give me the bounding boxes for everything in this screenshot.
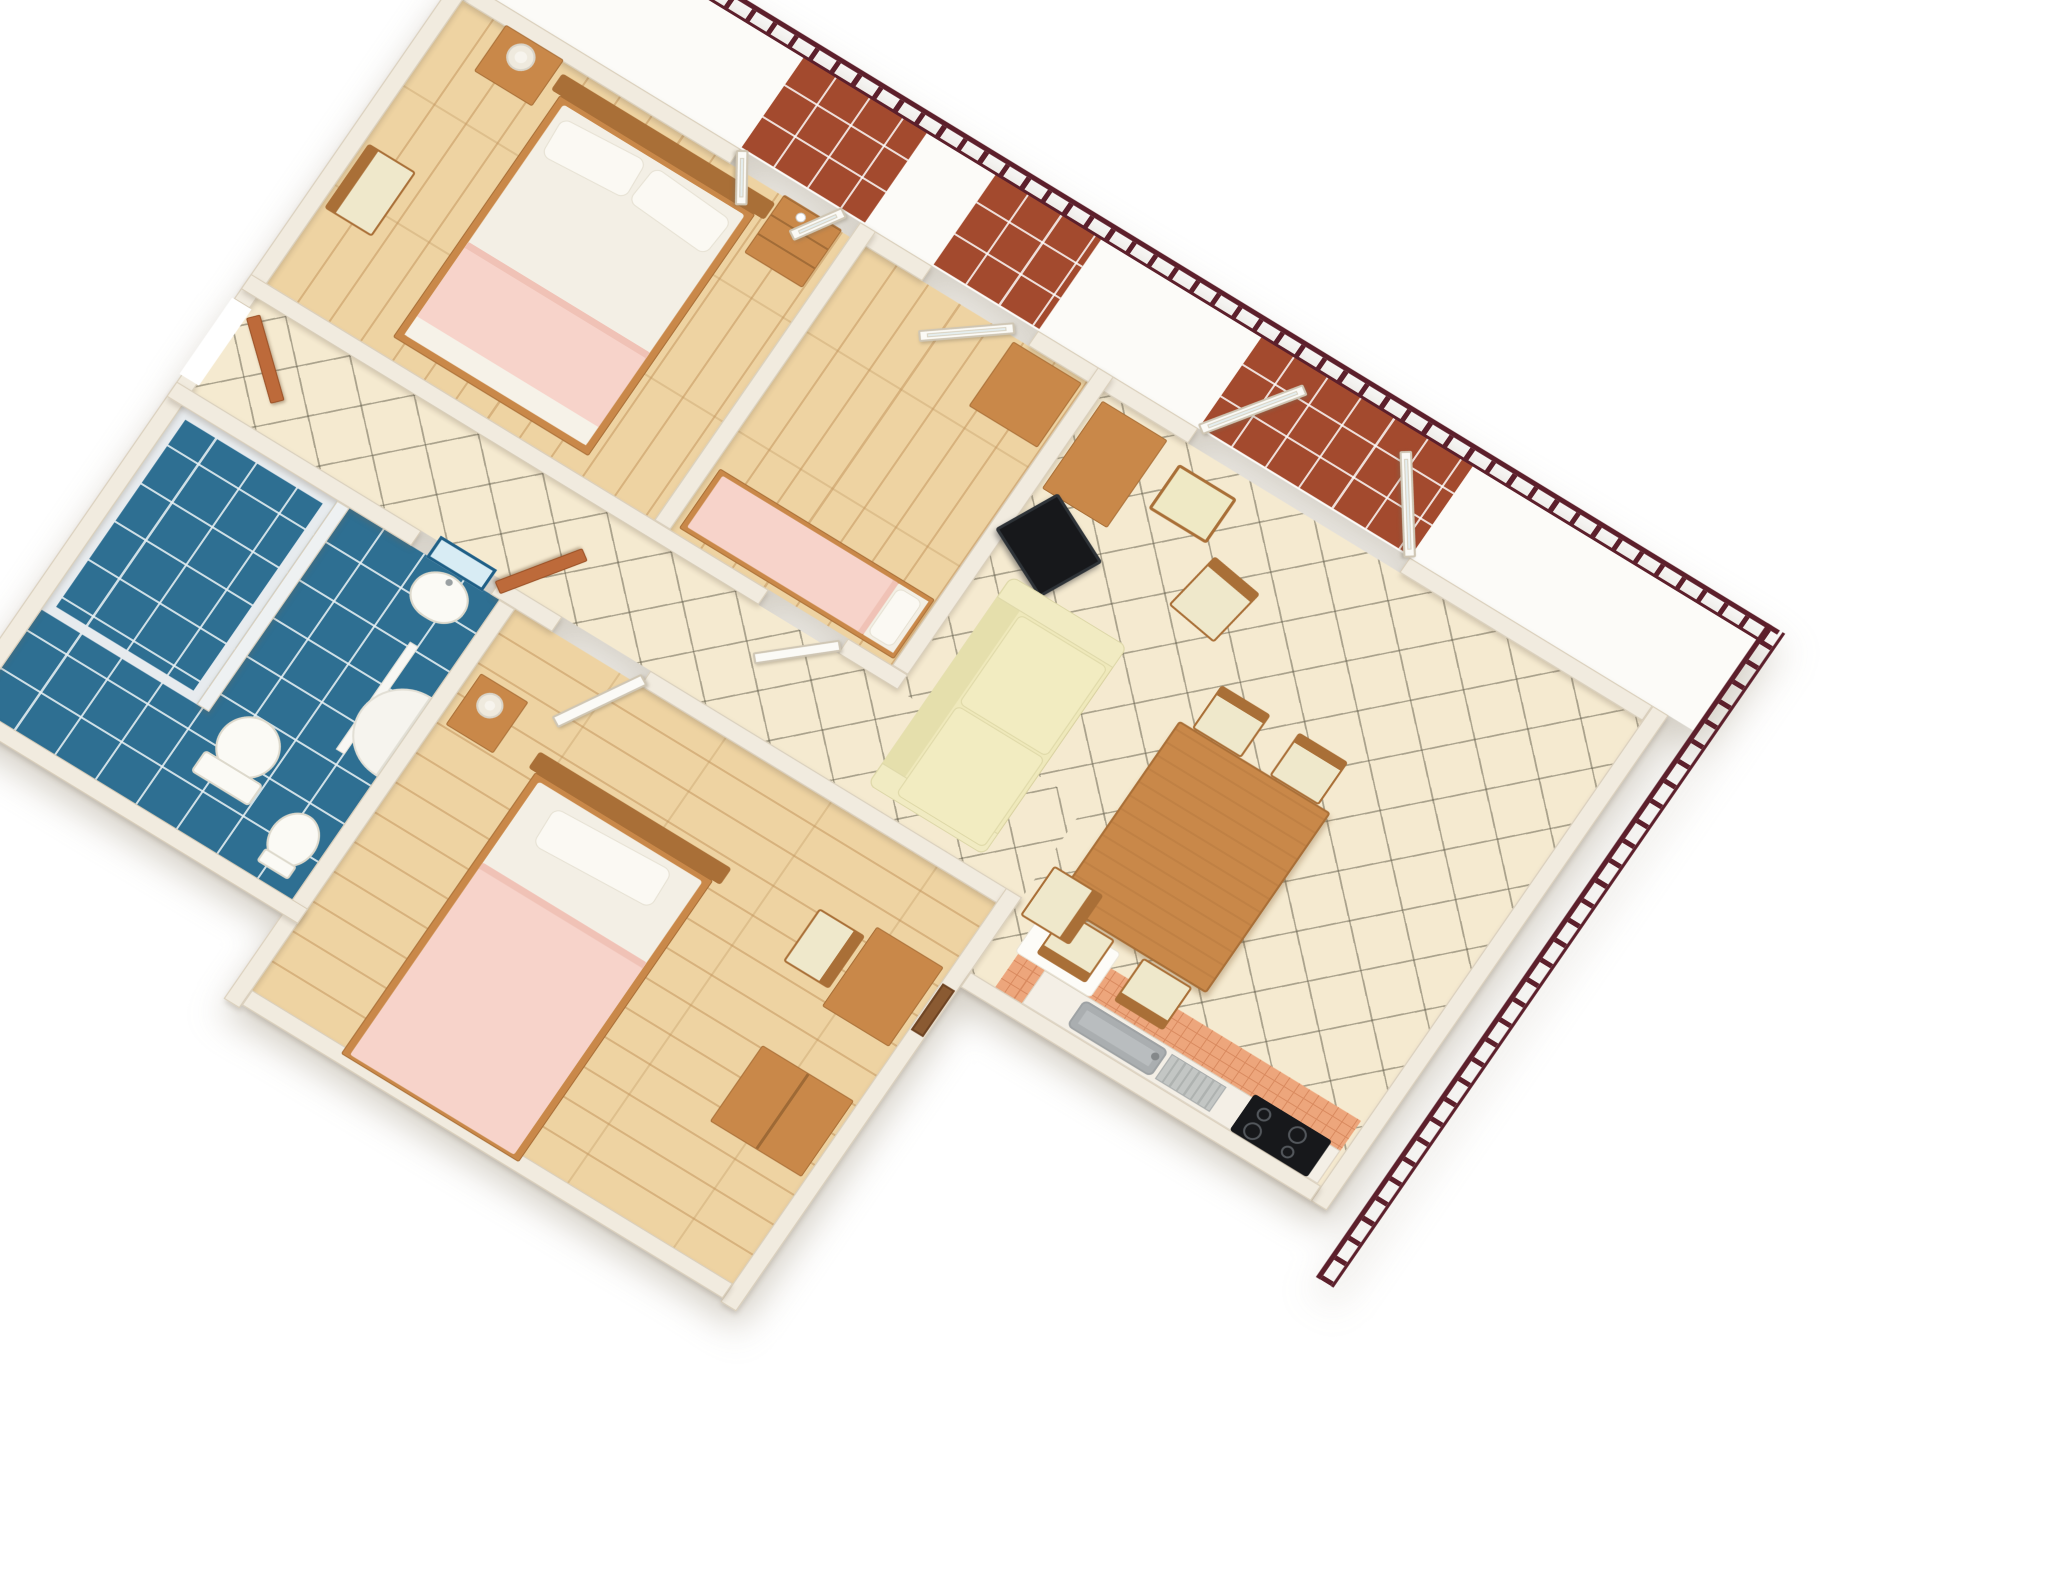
scene [0,0,2048,1538]
canvas: { "meta": { "title": "3D isometric floor… [0,0,2048,1538]
floor-plan [0,0,1786,1577]
bedroom1-balcony-door-left [735,150,749,205]
door-glass-pane [1404,459,1412,550]
door-glass-pane [739,158,744,198]
